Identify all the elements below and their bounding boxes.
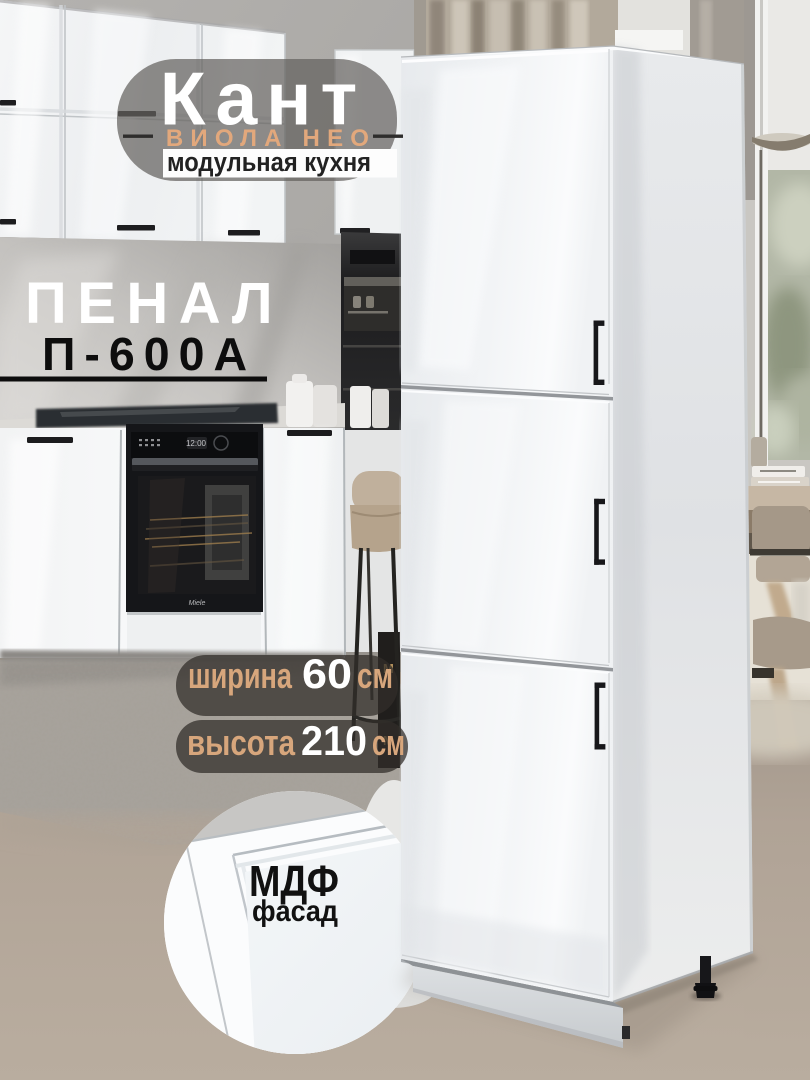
svg-text:см: см — [372, 722, 405, 763]
svg-text:ширина: ширина — [188, 655, 293, 696]
svg-text:60: 60 — [302, 650, 352, 697]
svg-text:фасад: фасад — [252, 895, 338, 928]
svg-text:П-600А: П-600А — [42, 328, 256, 380]
svg-text:210: 210 — [301, 717, 367, 764]
svg-text:высота: высота — [187, 722, 296, 763]
svg-text:Miele: Miele — [189, 600, 206, 607]
svg-text:12:00: 12:00 — [186, 439, 207, 448]
svg-text:ПЕНАЛ: ПЕНАЛ — [25, 271, 283, 336]
svg-text:см: см — [357, 655, 393, 696]
svg-text:модульная кухня: модульная кухня — [167, 147, 371, 177]
